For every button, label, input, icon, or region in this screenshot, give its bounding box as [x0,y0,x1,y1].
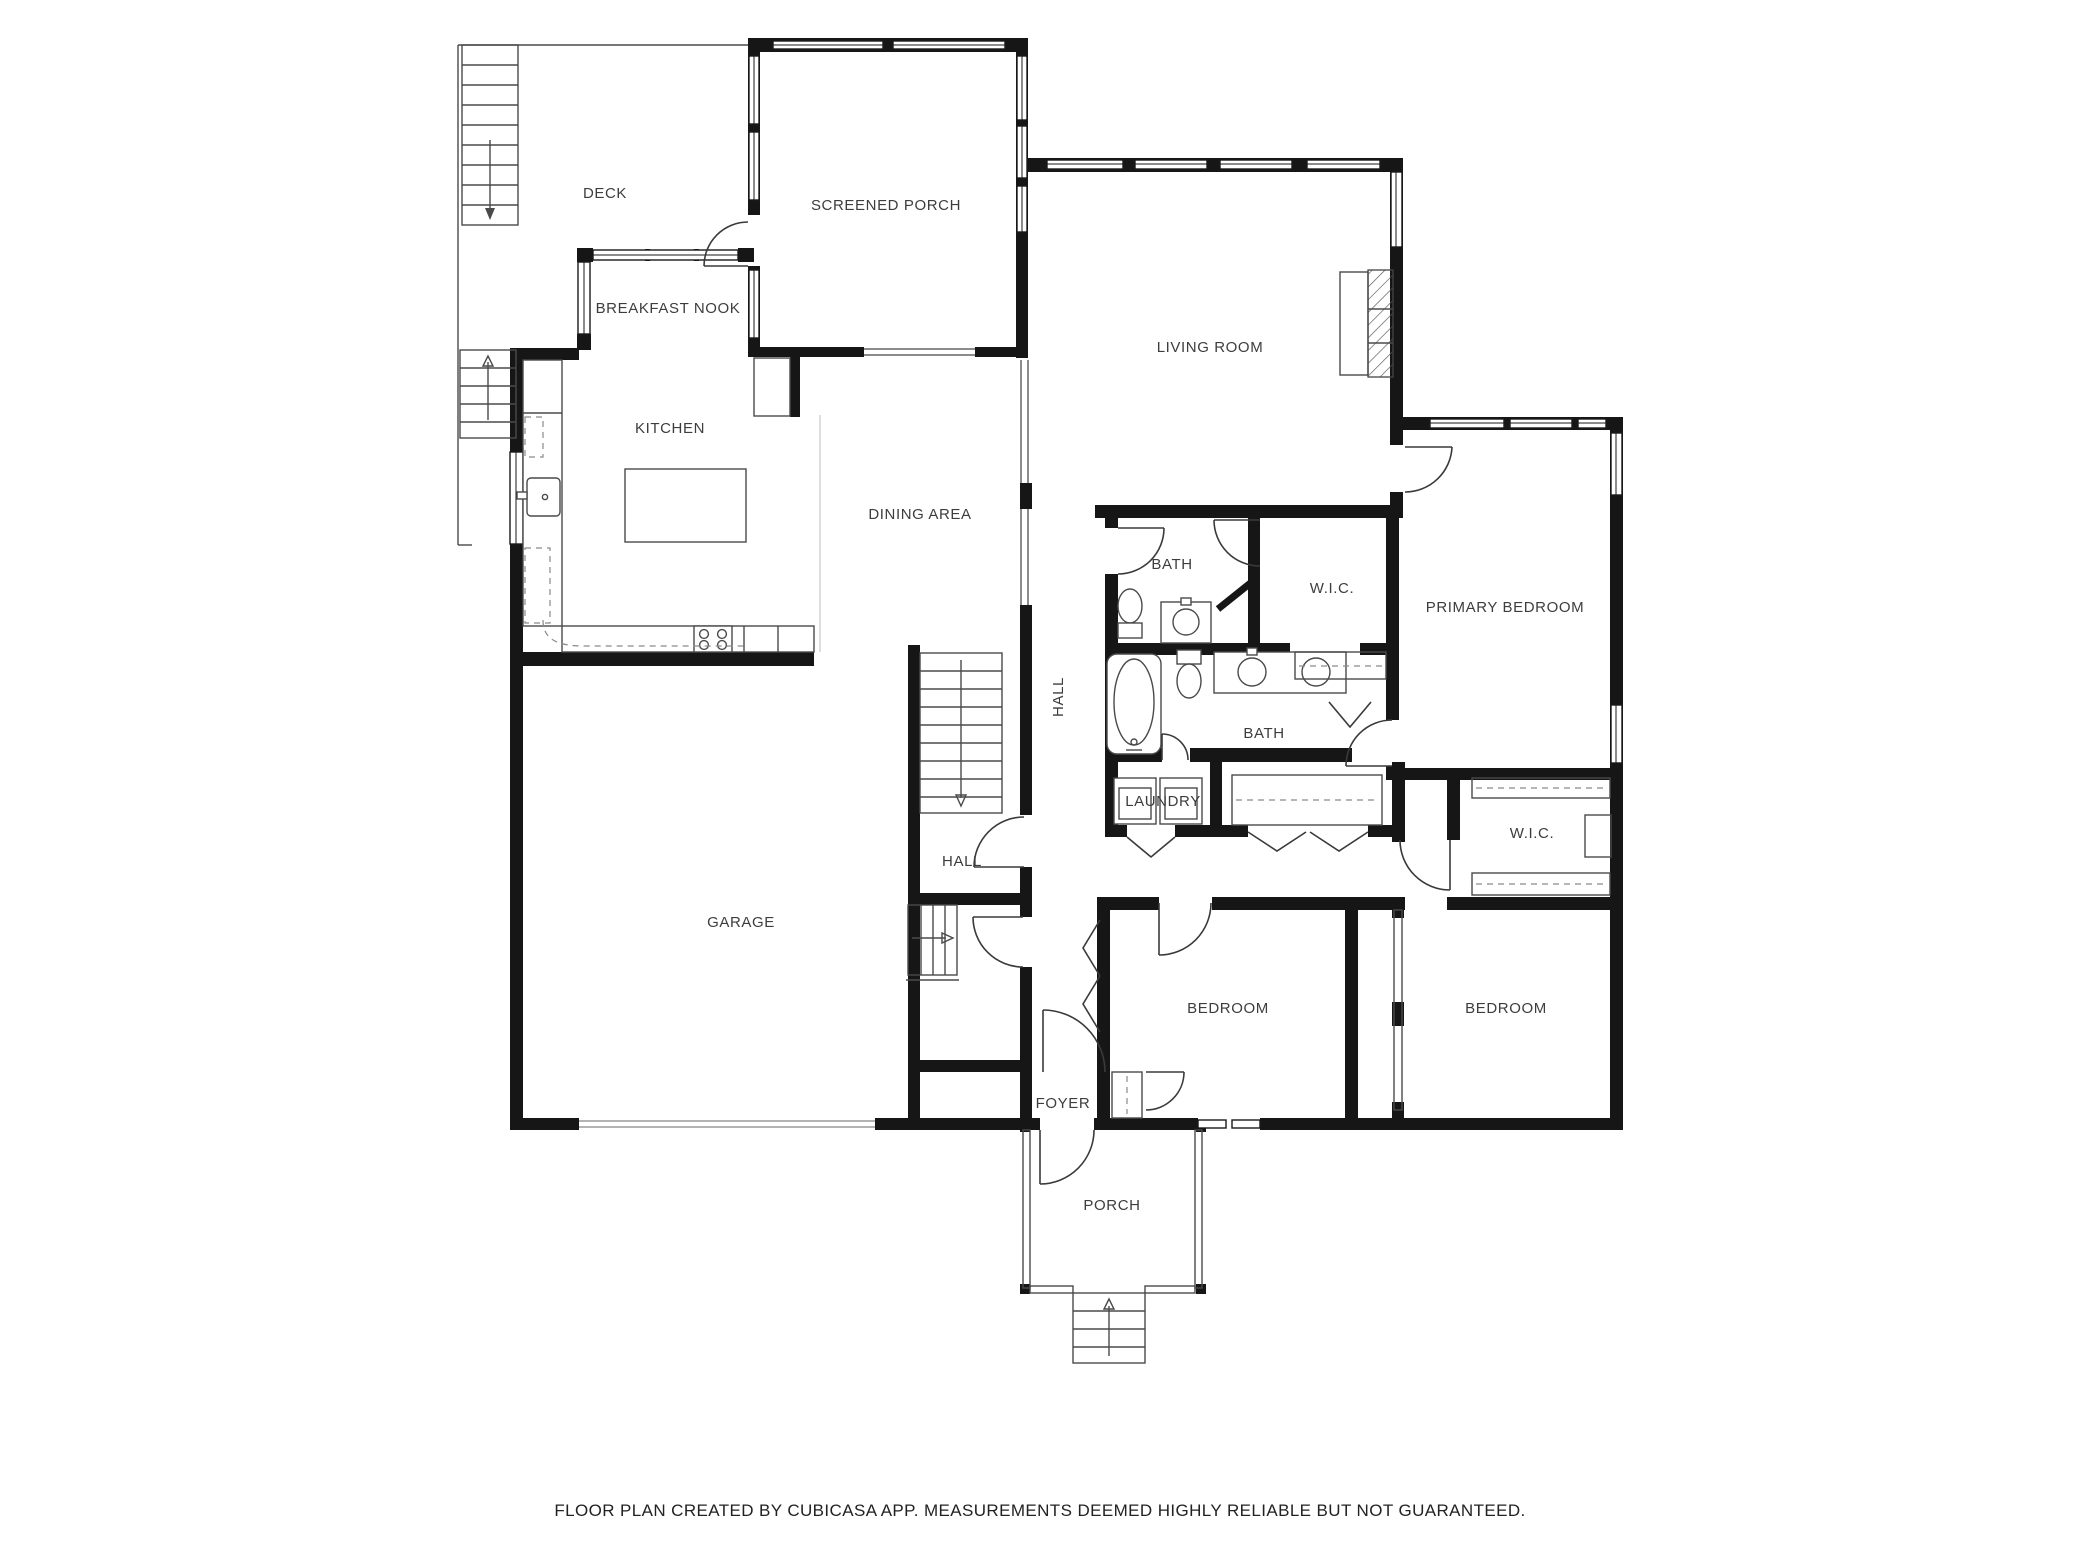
bath-diagonal-wall [1218,581,1253,609]
room-label-primary-bedroom: PRIMARY BEDROOM [1426,599,1584,616]
room-label-garage: GARAGE [707,914,775,931]
floor-plan-canvas: DECK SCREENED PORCH BREAKFAST NOOK KITCH… [0,0,2080,1560]
vanity-lower-icon [1214,648,1346,693]
windows [510,41,1622,1130]
toilet-lower-icon [1177,650,1201,698]
deck-stairs-upper-icon [462,45,518,225]
room-label-wic-upper: W.I.C. [1310,580,1354,597]
kitchen-island [625,469,746,542]
room-label-bath-upper: BATH [1151,556,1192,573]
deck-stairs-lower-icon [460,350,516,438]
porch-steps-icon [1073,1293,1145,1363]
room-label-screened-porch: SCREENED PORCH [811,197,961,214]
vanity-upper-icon [1161,598,1211,643]
room-label-bedroom-right: BEDROOM [1465,1000,1547,1017]
footer-disclaimer: FLOOR PLAN CREATED BY CUBICASA APP. MEAS… [554,1501,1525,1520]
room-label-kitchen: KITCHEN [635,420,705,437]
room-label-bedroom-left: BEDROOM [1187,1000,1269,1017]
room-label-hall-corridor: HALL [1050,677,1067,717]
fireplace-icon [1340,270,1393,377]
room-label-wic-lower: W.I.C. [1510,825,1554,842]
pantry-cabinet [754,358,790,416]
toilet-upper-icon [1118,589,1142,638]
room-label-laundry: LAUNDRY [1125,793,1201,810]
hall-stairs-icon [920,653,1002,813]
room-label-living-room: LIVING ROOM [1157,339,1264,356]
room-label-bath-lower: BATH [1243,725,1284,742]
room-label-porch: PORCH [1083,1197,1140,1214]
room-label-foyer: FOYER [1036,1095,1091,1112]
room-label-dining-area: DINING AREA [868,506,971,523]
bathtub-icon [1107,654,1161,754]
closet-shelves [1112,652,1611,1118]
floor-plan-page: DECK SCREENED PORCH BREAKFAST NOOK KITCH… [0,0,2080,1560]
room-label-breakfast-nook: BREAKFAST NOOK [596,300,741,317]
stove-icon [694,626,732,652]
room-label-deck: DECK [583,185,627,202]
room-label-hall-stairs: HALL [942,853,982,870]
kitchen-counter [523,358,814,652]
